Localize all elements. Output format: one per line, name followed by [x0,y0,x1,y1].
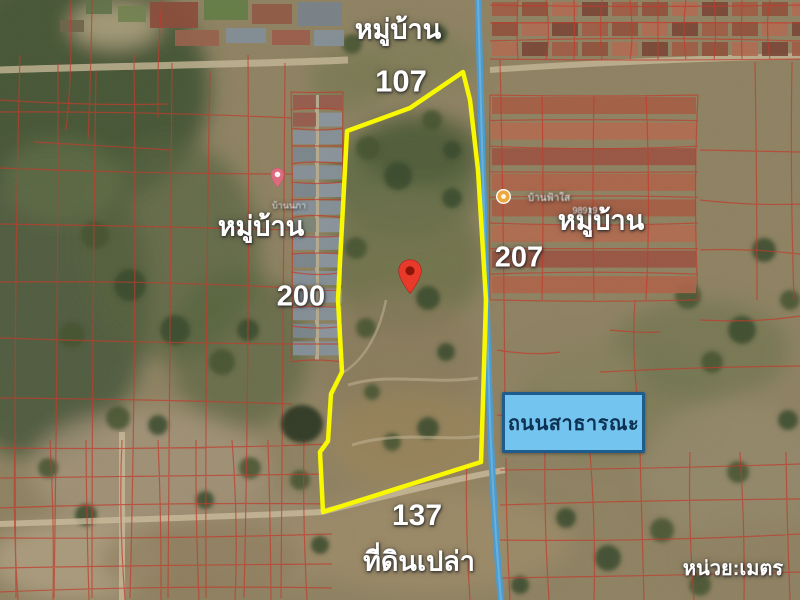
dimension-west: 200 [277,283,325,312]
road-name-text: ถนนสาธารณะ [508,407,639,439]
village-label-right: หมู่บ้าน [558,208,644,235]
lodging-poi-pin-icon[interactable] [270,167,285,189]
poi-name-right: บ้านฟ้าใส [528,194,570,204]
dimension-north: 107 [375,66,427,97]
dimension-east: 207 [495,244,543,273]
vacant-land-label: ที่ดินเปล่า [363,549,475,576]
map-canvas[interactable]: หมู่บ้าน 107 หมู่บ้าน 200 หมู่บ้าน 207 1… [0,0,800,600]
village-label-left: หมู่บ้าน [218,214,304,241]
location-pin-icon[interactable] [397,258,423,296]
shop-poi-dot-icon[interactable] [495,188,512,205]
village-label-top: หมู่บ้าน [355,17,441,44]
road-name-badge: ถนนสาธารณะ [502,392,645,453]
poi-name-left: บ้านนภา [272,202,306,211]
poi-name-right-sub: 98919 [572,207,597,216]
dimension-south: 137 [392,501,442,531]
unit-note: หน่วย:เมตร [683,559,783,579]
